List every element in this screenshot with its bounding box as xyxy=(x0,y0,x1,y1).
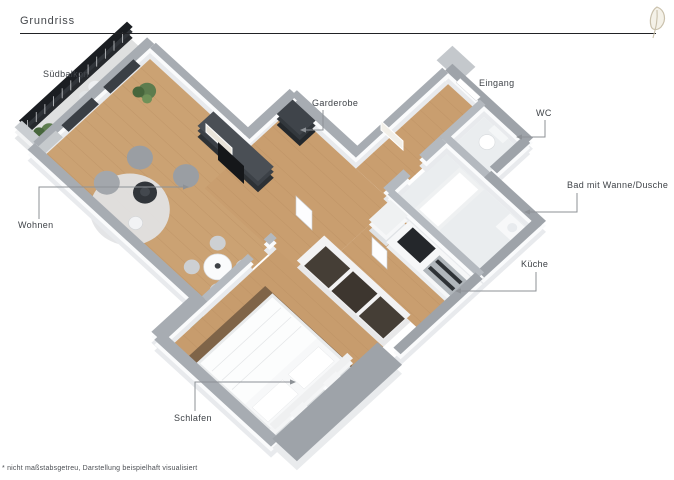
room-label-wc: WC xyxy=(536,108,552,118)
leader-arrow xyxy=(516,134,522,139)
leader-schlafen xyxy=(195,379,296,411)
leader-arrow xyxy=(524,209,530,214)
room-label-kueche: Küche xyxy=(521,259,548,269)
room-label-schlafen: Schlafen xyxy=(174,413,212,423)
leader-bad xyxy=(524,193,577,215)
leader-arrow xyxy=(290,379,296,384)
leader-wohnen xyxy=(39,184,189,219)
room-label-eingang: Eingang xyxy=(479,78,514,88)
page-title: Grundriss xyxy=(20,15,75,27)
room-label-garderobe: Garderobe xyxy=(312,98,358,108)
footer-disclaimer: * nicht maßstabsgetreu, Darstellung beis… xyxy=(2,465,197,472)
leader-wc xyxy=(516,120,545,140)
leader-arrow xyxy=(183,184,189,189)
floorplan-page: Grundriss Südbalkon Wohnen Garderobe Ein… xyxy=(0,0,674,480)
room-label-wohnen: Wohnen xyxy=(18,220,53,230)
leader-garderobe xyxy=(300,110,323,133)
label-leader-lines xyxy=(0,0,674,480)
leader-arrow xyxy=(300,127,306,132)
title-divider xyxy=(20,33,656,34)
brand-leaf-logo xyxy=(642,2,672,42)
leader-kueche xyxy=(455,272,536,294)
leader-arrow xyxy=(455,288,461,293)
room-label-bad: Bad mit Wanne/Dusche xyxy=(567,180,668,190)
room-label-suedbalkon: Südbalkon xyxy=(43,69,89,79)
